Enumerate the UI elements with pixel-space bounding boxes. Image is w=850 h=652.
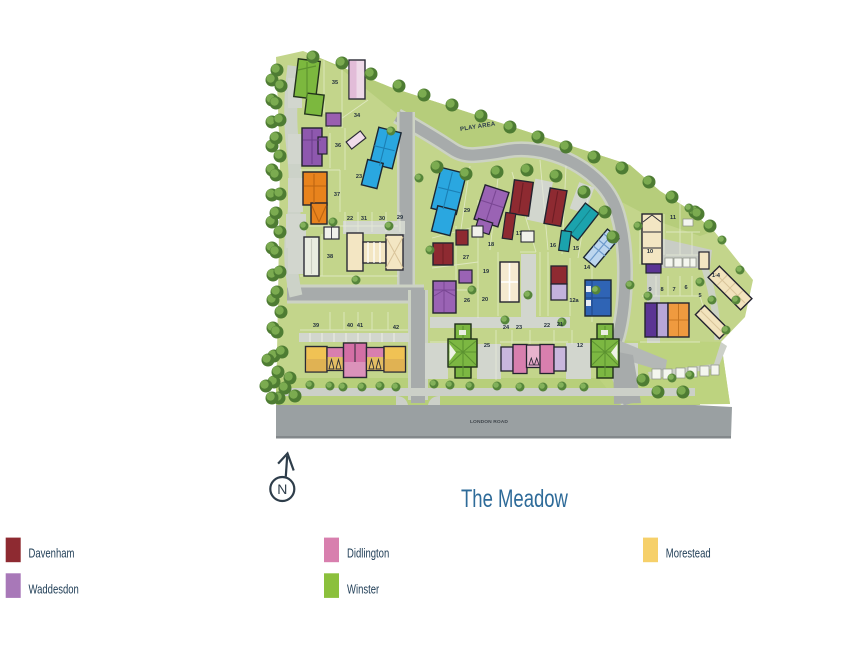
svg-text:The Meadow: The Meadow (461, 484, 568, 512)
svg-text:29: 29 (464, 208, 470, 214)
svg-text:Waddesdon: Waddesdon (29, 583, 79, 597)
svg-text:10: 10 (647, 249, 653, 255)
svg-text:Winster: Winster (347, 583, 379, 597)
svg-text:17: 17 (516, 231, 522, 237)
svg-text:Morestead: Morestead (666, 547, 711, 561)
svg-text:25: 25 (484, 343, 490, 349)
svg-text:36: 36 (335, 143, 341, 149)
svg-text:11: 11 (670, 215, 676, 221)
svg-text:42: 42 (393, 325, 399, 331)
svg-text:37: 37 (334, 192, 340, 198)
svg-text:16: 16 (550, 243, 556, 249)
svg-text:Davenham: Davenham (29, 547, 75, 561)
svg-text:30: 30 (379, 216, 385, 222)
svg-text:12: 12 (577, 343, 583, 349)
svg-text:9: 9 (648, 287, 651, 293)
svg-text:6: 6 (684, 285, 687, 291)
svg-text:21: 21 (557, 322, 563, 328)
svg-text:20: 20 (482, 297, 488, 303)
svg-text:8: 8 (660, 287, 663, 293)
svg-text:26: 26 (464, 298, 470, 304)
svg-text:23: 23 (516, 325, 522, 331)
svg-text:1-4: 1-4 (712, 273, 721, 279)
svg-text:23: 23 (356, 174, 362, 180)
svg-text:24: 24 (503, 325, 510, 331)
svg-text:35: 35 (332, 80, 338, 86)
svg-text:38: 38 (327, 254, 333, 260)
svg-text:31: 31 (361, 216, 367, 222)
svg-text:19: 19 (483, 269, 489, 275)
svg-text:12a: 12a (569, 298, 579, 304)
svg-text:5: 5 (698, 293, 701, 299)
svg-text:29: 29 (397, 215, 403, 221)
svg-text:Didlington: Didlington (347, 547, 389, 561)
svg-text:22: 22 (544, 323, 550, 329)
svg-text:15: 15 (573, 246, 579, 252)
svg-text:7: 7 (672, 287, 675, 293)
svg-text:LONDON ROAD: LONDON ROAD (470, 419, 508, 425)
svg-text:41: 41 (357, 323, 363, 329)
svg-text:14: 14 (584, 265, 591, 271)
svg-text:39: 39 (313, 323, 319, 329)
svg-text:18: 18 (488, 242, 494, 248)
svg-text:N: N (277, 481, 287, 497)
svg-text:34: 34 (354, 113, 361, 119)
svg-text:27: 27 (463, 255, 469, 261)
svg-text:22: 22 (347, 216, 353, 222)
svg-text:40: 40 (347, 323, 353, 329)
